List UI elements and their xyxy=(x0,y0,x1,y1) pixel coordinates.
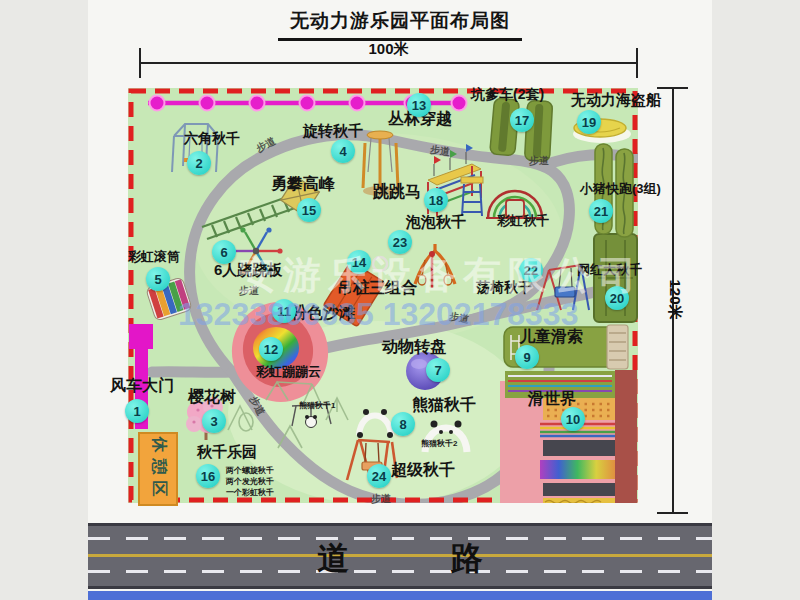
attraction-marker-4: 4 xyxy=(331,139,355,163)
attraction-marker-16: 16 xyxy=(196,464,220,488)
attraction-label-1: 风车大门 xyxy=(110,378,174,395)
attraction-marker-15: 15 xyxy=(297,198,321,222)
attraction-label-5: 彩虹滚筒 xyxy=(128,250,180,264)
attraction-marker-13: 13 xyxy=(407,93,431,117)
path-label: 步道 xyxy=(529,154,549,168)
attraction-label-16: 秋千乐园 xyxy=(197,444,257,460)
annotation-label: 两个发光秋千 xyxy=(226,478,274,486)
attraction-label-22: 荡椅秋千 xyxy=(476,280,532,295)
attraction-marker-18: 18 xyxy=(424,188,448,212)
annotation-label: 一个彩虹秋千 xyxy=(226,489,274,497)
attraction-label-14: 吊桩三组合 xyxy=(337,280,417,297)
attraction-label-7: 动物转盘 xyxy=(382,339,446,356)
attraction-label-17: 坑爹车(2套) xyxy=(471,87,544,102)
attraction-label-2: 六角秋千 xyxy=(184,131,240,146)
attraction-label-4: 旋转秋千 xyxy=(303,123,363,139)
attraction-label-20: 网红大秋千 xyxy=(577,263,642,277)
annotation-label: 熊猫秋千2 xyxy=(421,440,457,448)
attraction-label-24: 超级秋千 xyxy=(391,462,455,479)
attraction-marker-21: 21 xyxy=(589,199,613,223)
attraction-marker-11: 11 xyxy=(272,299,296,323)
attraction-marker-22: 22 xyxy=(519,258,543,282)
path-label: 步道 xyxy=(239,284,259,298)
attraction-label-10: 滑世界 xyxy=(528,391,576,408)
attraction-label-3: 樱花树 xyxy=(188,389,236,406)
attraction-marker-12: 12 xyxy=(259,337,283,361)
attraction-marker-19: 19 xyxy=(577,110,601,134)
attraction-label-8: 熊猫秋千 xyxy=(412,397,476,414)
attraction-label-12: 彩虹蹦蹦云 xyxy=(256,365,321,379)
attraction-label-18: 跳跳马 xyxy=(373,184,421,201)
path-label: 步道 xyxy=(246,394,268,418)
attraction-marker-23: 23 xyxy=(388,230,412,254)
attraction-marker-9: 9 xyxy=(515,345,539,369)
attraction-marker-8: 8 xyxy=(391,412,415,436)
labels-overlay: 风车大门1六角秋千2樱花树3旋转秋千4彩虹滚筒56人跷跷板6动物转盘7熊猫秋千8… xyxy=(0,0,800,600)
attraction-label-6: 6人跷跷板 xyxy=(214,262,282,278)
attraction-marker-20: 20 xyxy=(605,286,629,310)
attraction-marker-6: 6 xyxy=(212,240,236,264)
attraction-label-21: 小猪快跑(3组) xyxy=(580,182,661,196)
attraction-label-9: 儿童滑索 xyxy=(519,329,583,346)
attraction-label-11: 粉色沙滩 xyxy=(291,305,355,322)
path-label: 步道 xyxy=(429,143,451,160)
attraction-marker-17: 17 xyxy=(510,108,534,132)
attraction-marker-2: 2 xyxy=(187,151,211,175)
annotation-label: 彩虹秋千 xyxy=(497,214,549,228)
attraction-label-15: 勇攀高峰 xyxy=(271,176,335,193)
attraction-marker-14: 14 xyxy=(347,250,371,274)
annotation-label: 两个螺旋秋千 xyxy=(226,467,274,475)
attraction-marker-3: 3 xyxy=(202,409,226,433)
screenshot-root: 无动力游乐园平面布局图 100米 120米 xyxy=(0,0,800,600)
attraction-marker-1: 1 xyxy=(125,399,149,423)
attraction-marker-10: 10 xyxy=(561,407,585,431)
attraction-label-19: 无动力海盗船 xyxy=(571,92,661,108)
attraction-marker-7: 7 xyxy=(426,358,450,382)
path-label: 步道 xyxy=(448,309,470,326)
attraction-marker-24: 24 xyxy=(367,464,391,488)
path-label: 步道 xyxy=(371,492,391,506)
attraction-label-23: 泡泡秋千 xyxy=(406,214,466,230)
annotation-label: 熊猫秋千1 xyxy=(299,402,335,410)
path-label: 步道 xyxy=(254,134,278,156)
attraction-marker-5: 5 xyxy=(146,267,170,291)
